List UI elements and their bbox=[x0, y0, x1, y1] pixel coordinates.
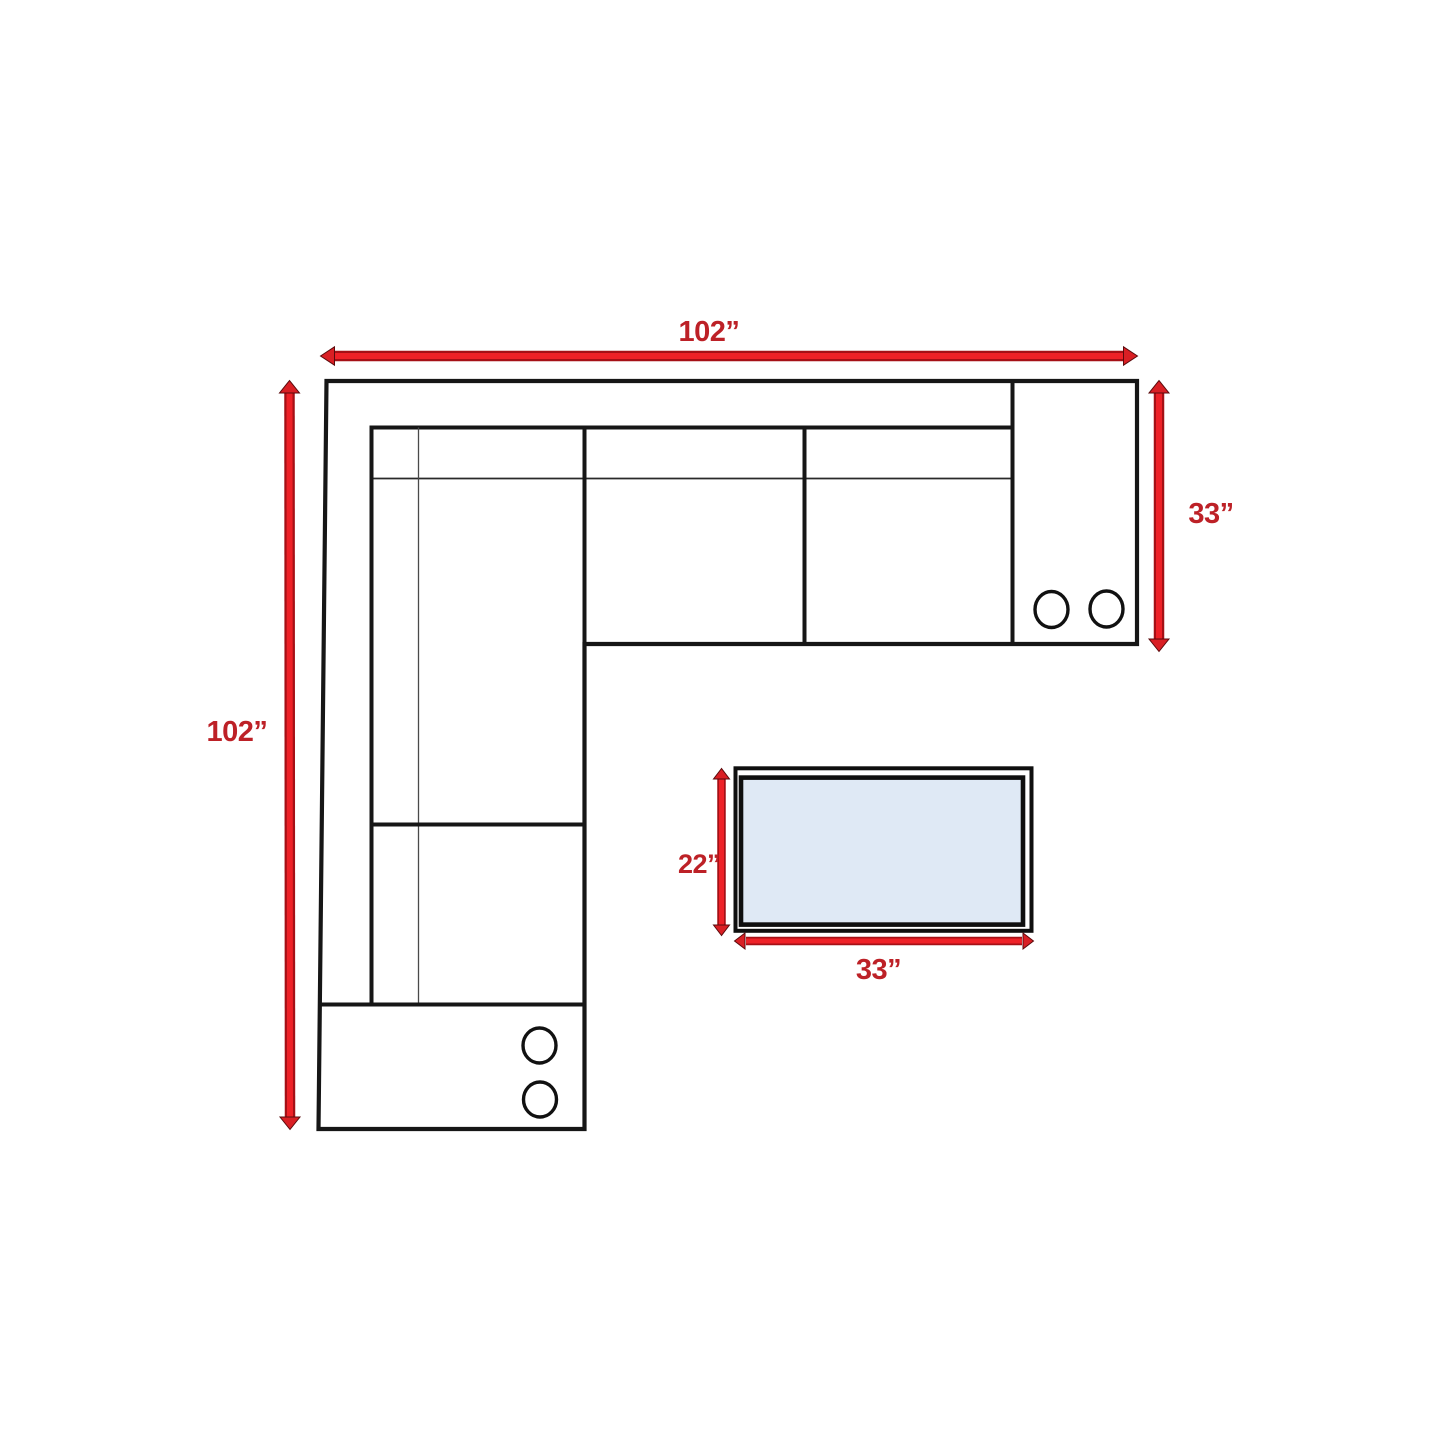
svg-text:22”: 22” bbox=[678, 849, 720, 879]
svg-text:33”: 33” bbox=[1188, 498, 1233, 530]
svg-text:102”: 102” bbox=[679, 316, 740, 348]
svg-text:102”: 102” bbox=[207, 716, 268, 748]
svg-text:33”: 33” bbox=[856, 954, 901, 986]
